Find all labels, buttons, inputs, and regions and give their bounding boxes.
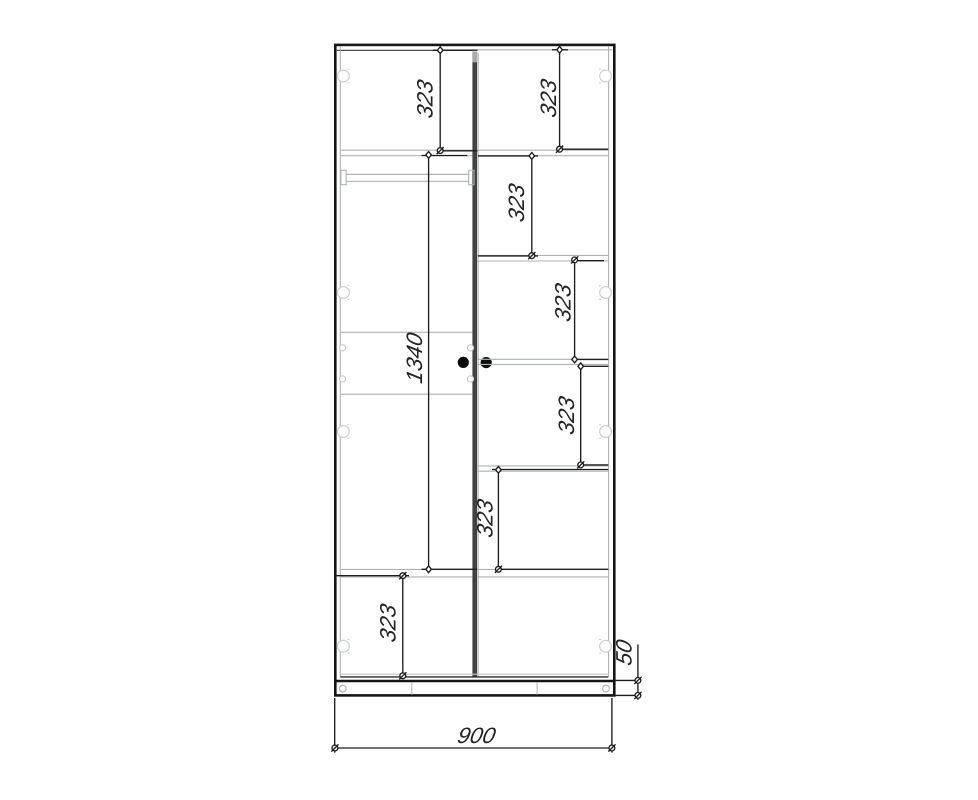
svg-text:50: 50 (612, 637, 637, 668)
svg-text:900: 900 (455, 723, 498, 748)
svg-text:323: 323 (536, 77, 561, 120)
svg-text:1340: 1340 (402, 330, 427, 385)
svg-text:323: 323 (504, 181, 529, 224)
svg-text:323: 323 (473, 497, 498, 540)
svg-text:323: 323 (551, 281, 576, 324)
svg-text:323: 323 (413, 77, 438, 120)
svg-text:323: 323 (376, 601, 401, 644)
svg-text:323: 323 (554, 394, 579, 437)
